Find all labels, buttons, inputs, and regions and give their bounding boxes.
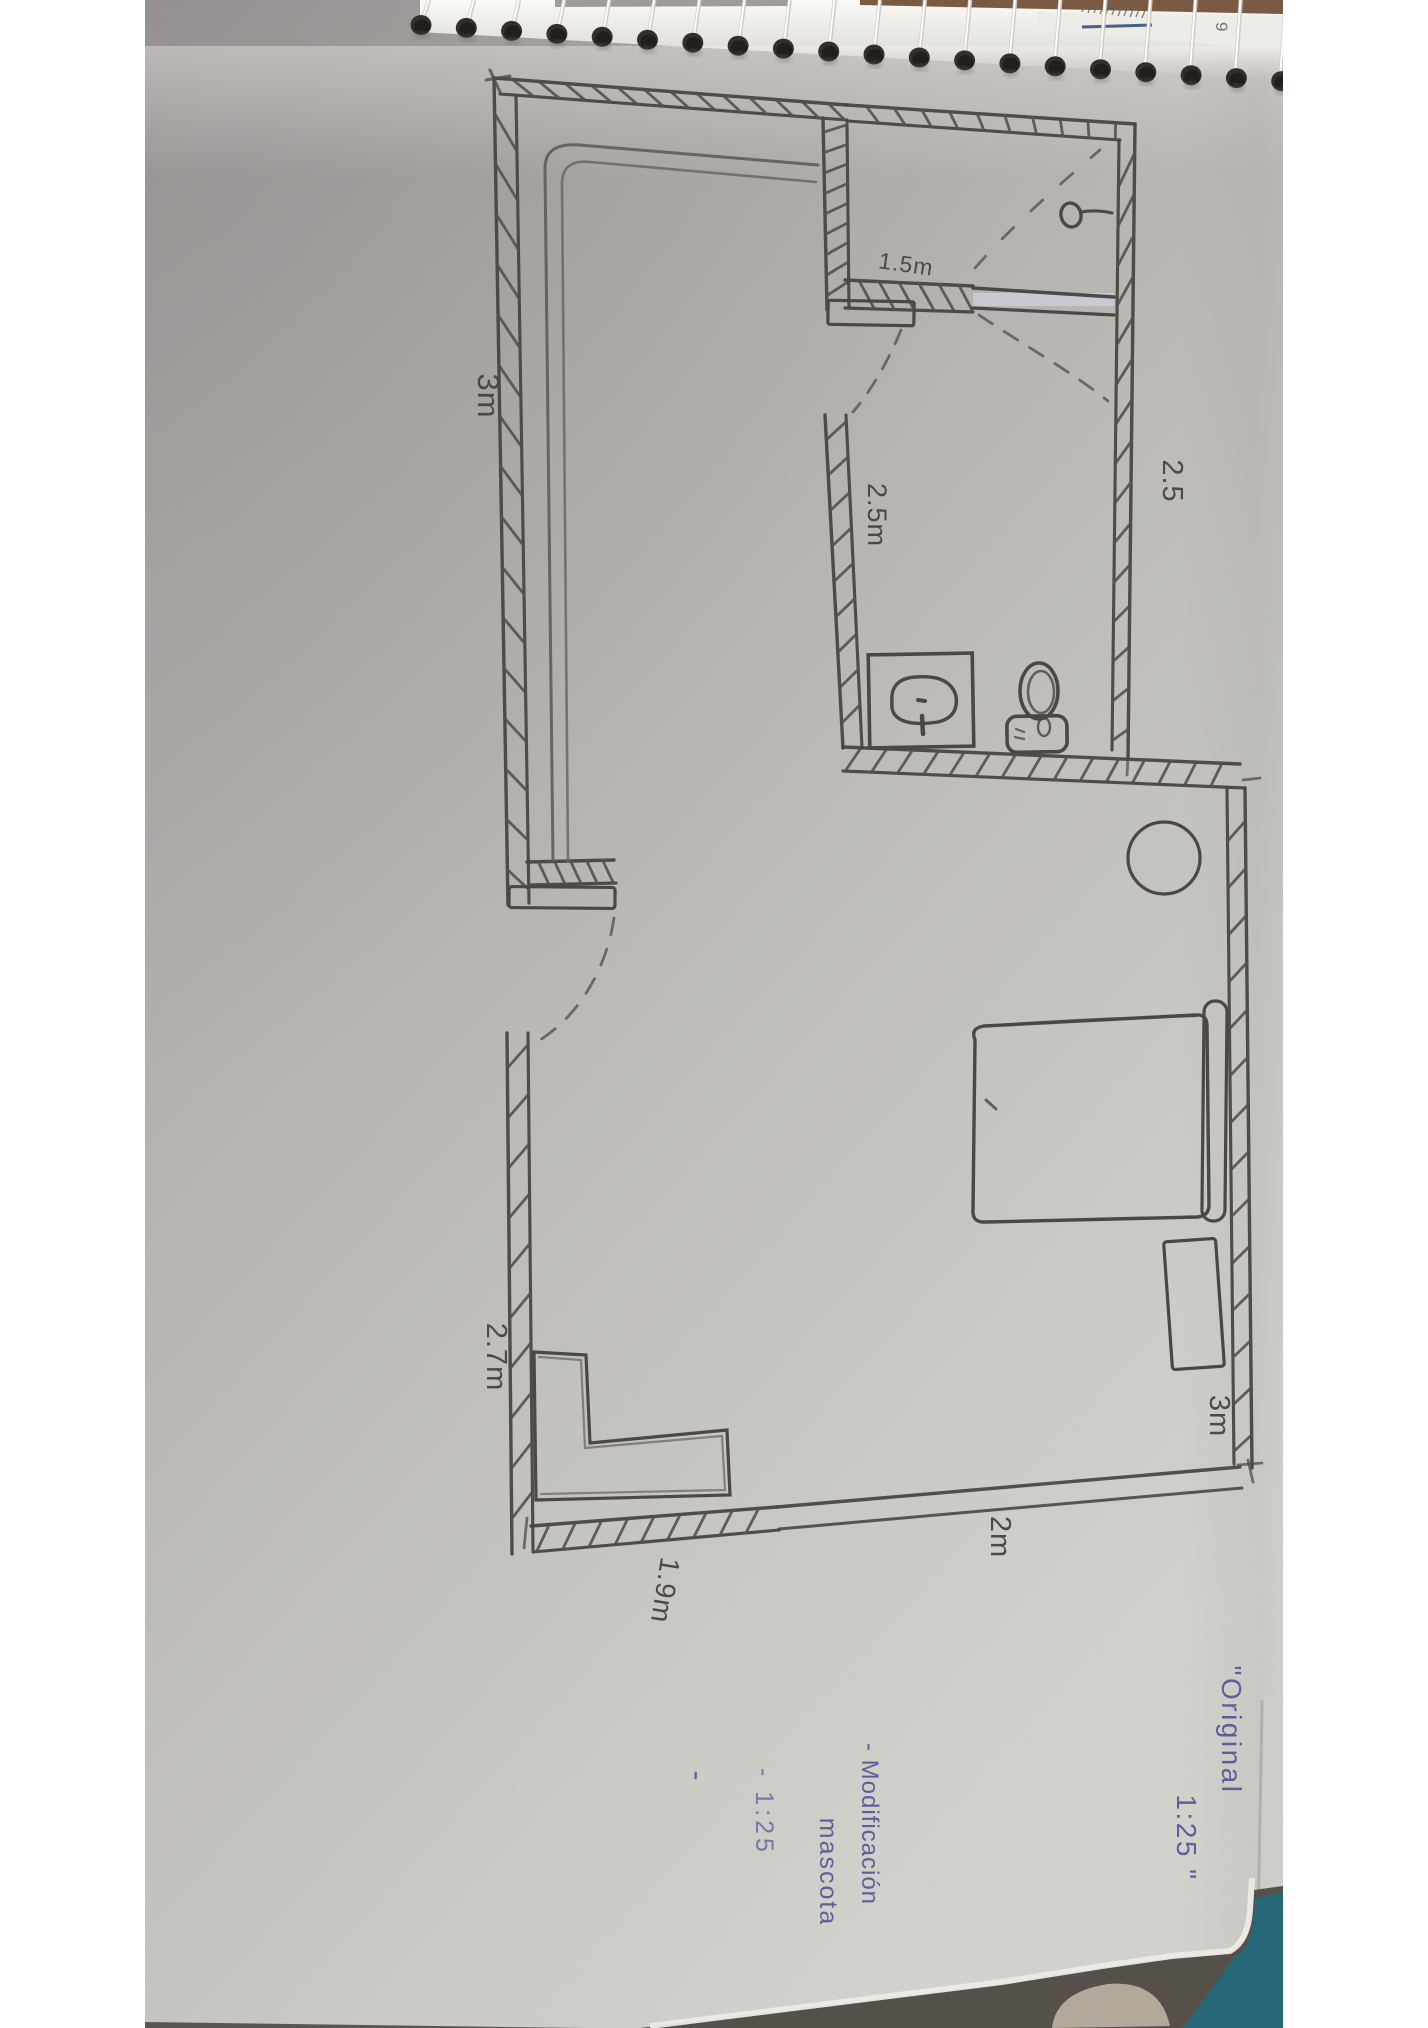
svg-text:"Original: "Original [1216, 1666, 1247, 1795]
svg-text:1:25 ": 1:25 " [1171, 1794, 1202, 1881]
svg-text:3m: 3m [1203, 1395, 1235, 1437]
svg-text:2m: 2m [984, 1516, 1016, 1558]
svg-text:-: - [681, 1771, 714, 1782]
svg-text:2.5: 2.5 [1156, 459, 1188, 502]
svg-text:2.5m: 2.5m [862, 483, 892, 547]
svg-text:- 1:25: - 1:25 [750, 1768, 778, 1856]
svg-text:2.7m: 2.7m [480, 1323, 512, 1391]
svg-text:mascota: mascota [814, 1818, 842, 1926]
svg-text:9: 9 [1212, 22, 1231, 31]
svg-text:- Modificación: - Modificación [856, 1743, 883, 1905]
svg-text:3m: 3m [471, 373, 506, 418]
